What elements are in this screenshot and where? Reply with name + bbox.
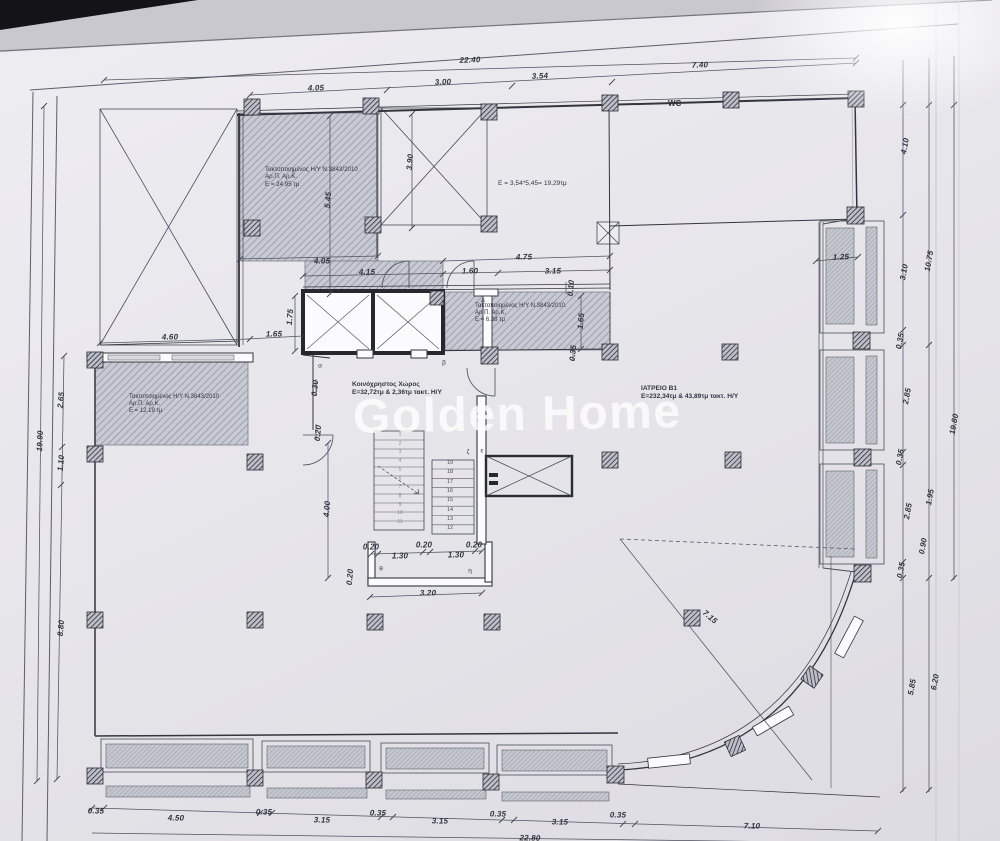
dimension-label: 7.40 — [692, 60, 709, 70]
room-label-room3: Τακτοποιημένος Η/Υ Ν.3843/2010. — [475, 303, 567, 309]
grid-letter: γ — [441, 298, 444, 305]
dimension-label: 0.35 — [490, 809, 507, 818]
stair-number: 14 — [447, 507, 453, 513]
dimension-label: 4.05 — [314, 256, 331, 265]
stair-number: 5 — [399, 467, 402, 473]
stair-number: 9 — [399, 502, 402, 508]
stair-number: 18 — [447, 469, 453, 475]
stair-number: 13 — [447, 516, 453, 522]
room-label-wc: WC — [668, 99, 681, 108]
dimension-label: 0.35 — [370, 808, 387, 817]
stair-number: 7 — [399, 484, 402, 490]
room-label-room1: Αρ.Π. Αρ.Κ. — [265, 173, 297, 180]
dimension-label: 3.00 — [435, 77, 452, 87]
dimension-label: 1.30 — [392, 552, 408, 561]
dimension-label: 4.05 — [308, 83, 325, 93]
dimension-label: 5.85 — [906, 678, 918, 696]
dimension-label: 0.20 — [363, 543, 379, 552]
dimension-label: 1.25 — [833, 252, 850, 262]
stair-number: 15 — [447, 497, 453, 503]
grid-letter: ε — [481, 448, 484, 455]
room-label-room2: Ε = 3,54*5,45= 19,29τμ — [498, 180, 567, 187]
dimension-label: 3.15 — [314, 815, 331, 824]
dimension-label: 4.15 — [359, 267, 376, 276]
dimension-label: 1.65 — [576, 312, 586, 329]
room-label-room4: Τακτοποιημένος Η/Υ Ν.3843/2010 — [129, 394, 219, 400]
dimension-label: 4.50 — [168, 813, 185, 822]
dimension-label: 1.10 — [56, 454, 66, 471]
stair-number: 12 — [447, 525, 453, 531]
dimension-label: 22.80 — [519, 833, 540, 841]
dimension-label: 8.80 — [56, 619, 66, 636]
dimension-label: 19.90 — [35, 430, 45, 451]
stair-number: 11 — [397, 519, 402, 525]
stair-number: 10 — [397, 510, 403, 516]
dimension-label: 0.35 — [894, 332, 906, 350]
watermark: Golden Home — [353, 384, 682, 445]
dimension-label: 1.95 — [924, 488, 936, 506]
dimension-label: 0.30 — [310, 379, 320, 396]
stair-number: 8 — [399, 493, 402, 499]
dimension-label: 3.15 — [552, 817, 569, 826]
dimension-label: 0.35 — [568, 344, 578, 361]
stair-number: 19 — [447, 460, 453, 466]
dimension-label: 1.65 — [266, 329, 283, 338]
dimension-label: 0.35 — [88, 806, 105, 815]
dimension-label: 2.85 — [902, 502, 914, 520]
dimension-label: 4.00 — [322, 500, 332, 517]
dimension-label: 3.15 — [545, 266, 562, 275]
room-label-room1: Τακτοποιημένος Η/Υ Ν.3843/2010 — [265, 166, 358, 173]
grid-letter: ζ — [467, 449, 470, 456]
room-label-room3: Αρ.Π. Αρ.Κ. — [475, 310, 506, 316]
dimension-label: 2.65 — [56, 391, 66, 408]
dimension-label: 0.20 — [466, 541, 482, 550]
stair-number: 6 — [399, 476, 402, 482]
dimension-label: 22.40 — [459, 55, 480, 65]
stair-number: 16 — [447, 488, 453, 494]
dimension-label: 7.10 — [744, 821, 761, 830]
dimension-label: 0.90 — [917, 537, 929, 555]
dimension-label: 0.10 — [566, 279, 576, 296]
dimension-label: 3.20 — [420, 588, 437, 597]
dimension-label: 3.15 — [432, 816, 449, 825]
dimension-label: 3.90 — [405, 153, 415, 170]
grid-letter: θ — [379, 566, 383, 573]
grid-letter: β — [442, 360, 446, 367]
dimension-label: 0.35 — [610, 810, 627, 819]
dimension-label: 0.35 — [894, 448, 906, 466]
grid-letter: α — [318, 363, 322, 370]
dimension-label: 3.54 — [532, 71, 549, 81]
dimension-label: 0.35 — [895, 561, 907, 579]
grid-letter: η — [468, 568, 472, 575]
dimension-label: 4.10 — [899, 137, 911, 155]
dimension-label: 0.20 — [313, 424, 323, 441]
dimension-label: 0.20 — [416, 541, 432, 550]
dimension-label: 2.85 — [901, 387, 913, 405]
dimension-label: 1.60 — [462, 266, 479, 275]
dimension-label: 1.75 — [285, 308, 295, 325]
room-label-common: Κοινόχρηστος Χώρος — [352, 381, 420, 388]
dimension-label: 4.60 — [162, 332, 179, 341]
room-label-room1: Ε = 24.95 τμ — [265, 181, 299, 188]
room-label-room4: Ε = 12.19 τμ — [129, 408, 162, 414]
room-label-room4: Αρ.Π. Αρ.Κ. — [129, 401, 160, 407]
floor-plan-photo: 22.404.053.003.547.403.905.454.054.151.6… — [0, 0, 1000, 841]
dimension-label: 6.20 — [929, 673, 941, 691]
dimension-label: 19.80 — [948, 413, 961, 435]
dimension-label: 0.20 — [345, 568, 355, 585]
dimension-label: 7.15 — [701, 608, 719, 625]
dimension-label: 5.45 — [323, 191, 333, 208]
dimension-label: 3.10 — [898, 263, 910, 281]
dimension-label: 0.35 — [256, 807, 273, 816]
dimension-label: 1.30 — [448, 551, 464, 560]
dimension-label: 10.75 — [923, 250, 936, 272]
dimension-label: 4.75 — [516, 252, 533, 261]
stair-number: 4 — [399, 458, 402, 464]
room-label-room3: Ε = 6.38 τμ — [475, 317, 505, 323]
stair-number: 17 — [447, 479, 453, 485]
stair-number: 3 — [399, 449, 402, 455]
